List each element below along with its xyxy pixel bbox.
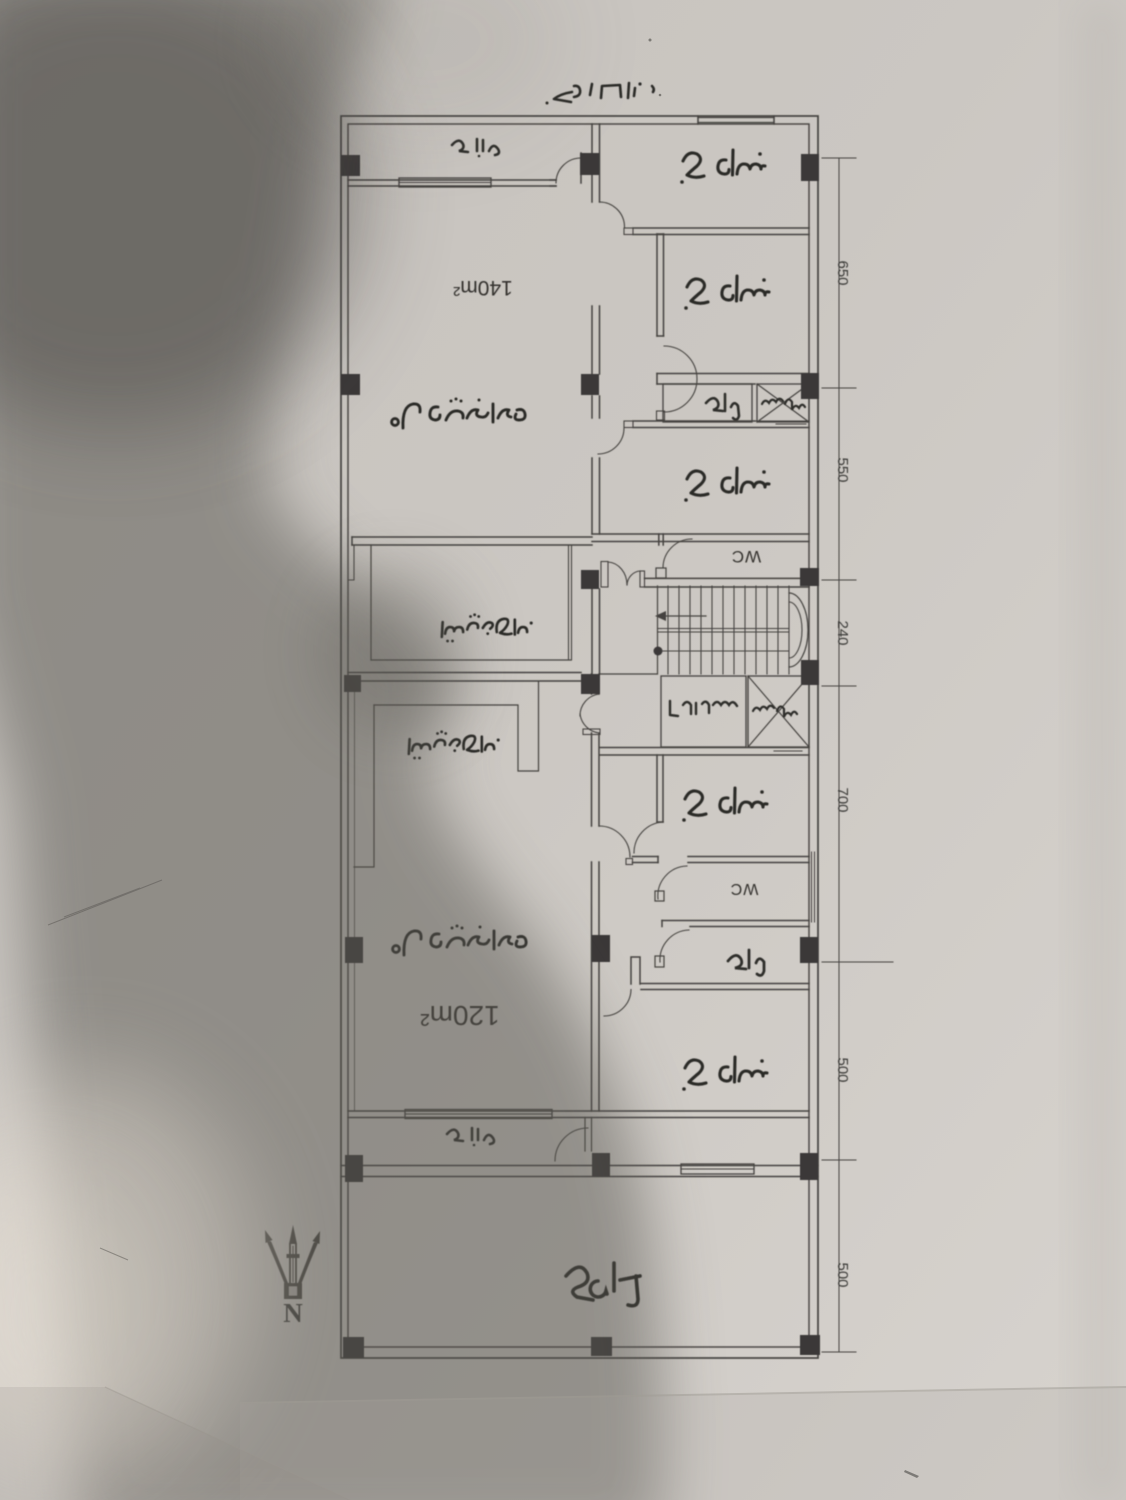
- svg-text:500: 500: [834, 1262, 851, 1287]
- svg-text:240: 240: [834, 620, 851, 645]
- svg-text:500: 500: [834, 1057, 851, 1082]
- svg-text:700: 700: [834, 787, 851, 812]
- svg-text:WC: WC: [730, 880, 759, 897]
- svg-text:550: 550: [834, 457, 851, 482]
- svg-text:650: 650: [834, 260, 851, 285]
- svg-text:WC: WC: [731, 547, 761, 566]
- svg-text:140m²: 140m²: [453, 276, 513, 299]
